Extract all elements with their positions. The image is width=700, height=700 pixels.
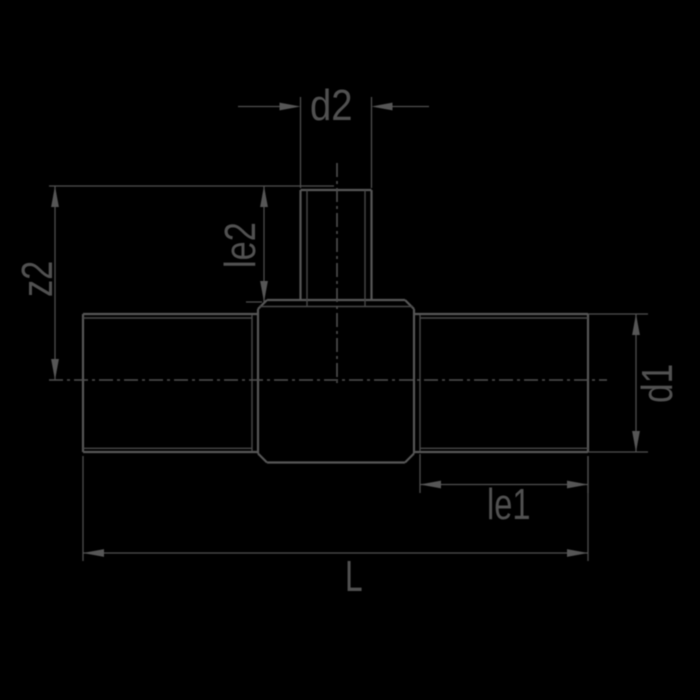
svg-text:le1: le1 xyxy=(487,480,530,529)
svg-text:d1: d1 xyxy=(633,364,682,403)
svg-text:d2: d2 xyxy=(310,81,353,130)
svg-text:le2: le2 xyxy=(216,222,265,268)
svg-text:L: L xyxy=(345,552,363,601)
svg-text:z2: z2 xyxy=(13,261,62,297)
